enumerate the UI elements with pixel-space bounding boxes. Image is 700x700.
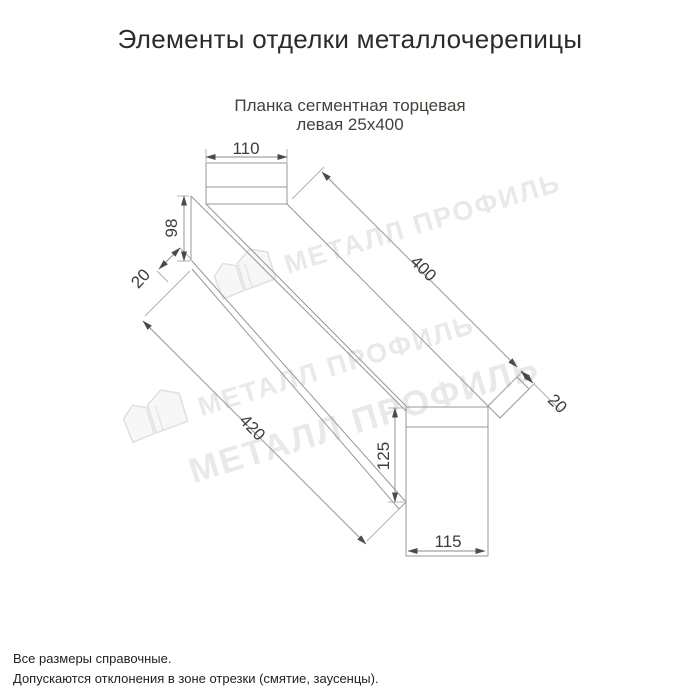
- extension-lines: [145, 149, 560, 541]
- technical-drawing: 110 98 20 400 420 20 125 115: [0, 0, 700, 700]
- dimension-labels: 110 98 20 400 420 20 125 115: [127, 139, 571, 551]
- dim-bottom-tab-height-label: 125: [374, 442, 393, 470]
- dimension-lines: [143, 157, 533, 551]
- dim-left-end-height-label: 98: [162, 219, 181, 238]
- dim-bottom-tab-width-label: 115: [434, 532, 461, 551]
- footer-note-2: Допускаются отклонения в зоне отрезки (с…: [13, 671, 379, 686]
- dim-top-tab-width-label: 110: [232, 139, 259, 158]
- part-outline: [191, 163, 529, 556]
- dim-right-fold-label: 20: [544, 390, 571, 417]
- footer-note-1: Все размеры справочные.: [13, 651, 171, 666]
- dim-face-length-label: 400: [407, 252, 441, 285]
- dim-left-fold-label: 20: [127, 265, 154, 292]
- dim-lower-edge-length-label: 420: [236, 411, 269, 445]
